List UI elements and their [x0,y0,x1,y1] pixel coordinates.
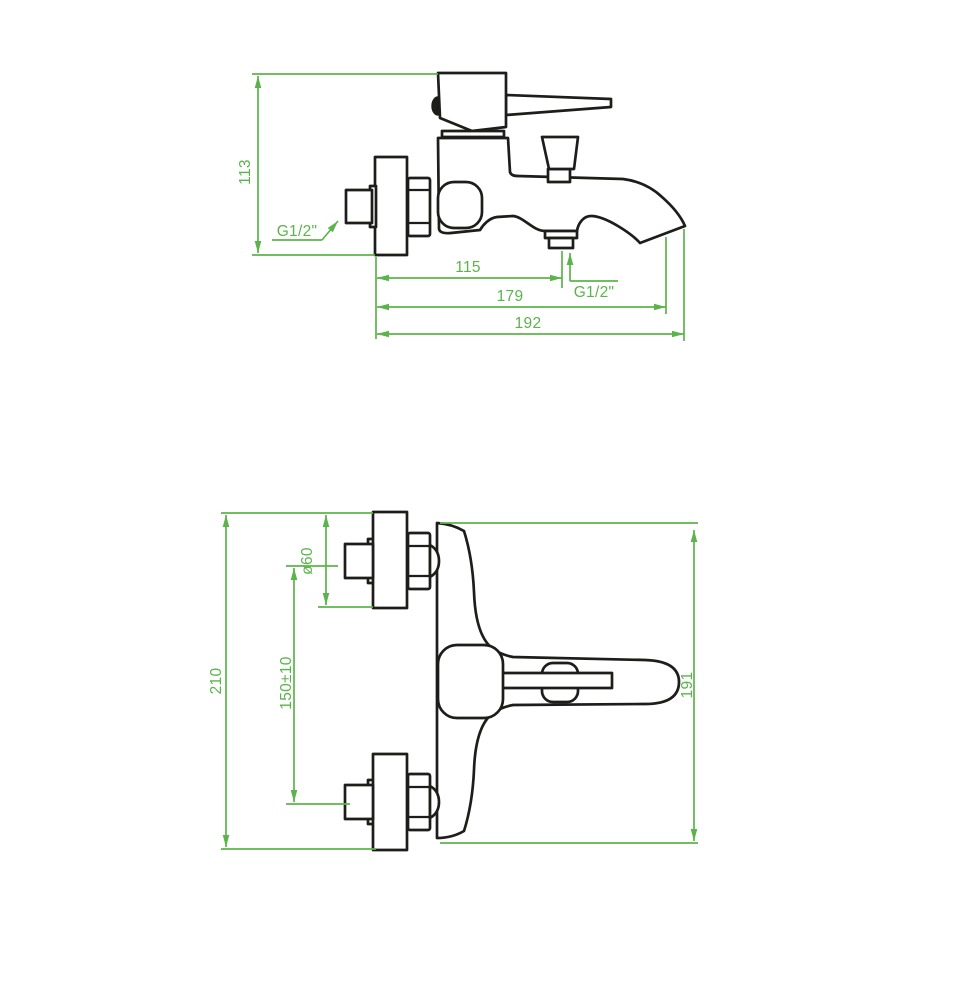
dim-60-label: ø60 [299,547,316,575]
handle-lever-plan [500,673,612,688]
escutcheon-plate-lower [373,754,407,850]
dim-150-label: 150±10 [278,656,295,709]
shower-outlet [549,238,573,248]
handle-head [438,73,506,131]
side-view: 113 G1/2" 115 179 192 G1/2" [237,73,685,341]
dim-192-label: 192 [515,315,542,332]
hex-nut-side [408,178,430,236]
diverter-knob-base [548,169,570,182]
dim-210-label: 210 [208,668,225,695]
diverter-knob [542,137,578,169]
dim-115-label: 115 [455,259,481,276]
escutcheon-plate-side [375,157,407,255]
dim-113-label: 113 [237,159,254,185]
wall-fitting-upper [345,544,373,578]
escutcheon-plate-upper [373,512,407,608]
hex-nut-lower [408,774,430,830]
cartridge-neck [442,131,504,137]
union-connector [438,182,482,228]
inlet-thread-label: G1/2" [277,223,318,240]
handle-indicator-dot [432,97,438,115]
dim-179-label: 179 [497,288,524,305]
hex-nut-upper [408,533,430,589]
outlet-thread-label: G1/2" [574,284,615,301]
plan-view: 210 ø60 150±10 191 [208,512,698,850]
wall-fitting-lower [345,785,373,819]
dim-191-label: 191 [679,672,696,699]
technical-drawing-page: 113 G1/2" 115 179 192 G1/2" [0,0,954,1000]
handle-lever [506,95,611,115]
wall-fitting [346,190,372,223]
faucet-dimension-drawing: 113 G1/2" 115 179 192 G1/2" [0,0,954,1000]
leader-arrow-inlet-thread [322,221,338,240]
cartridge-dome-plan [438,645,503,718]
